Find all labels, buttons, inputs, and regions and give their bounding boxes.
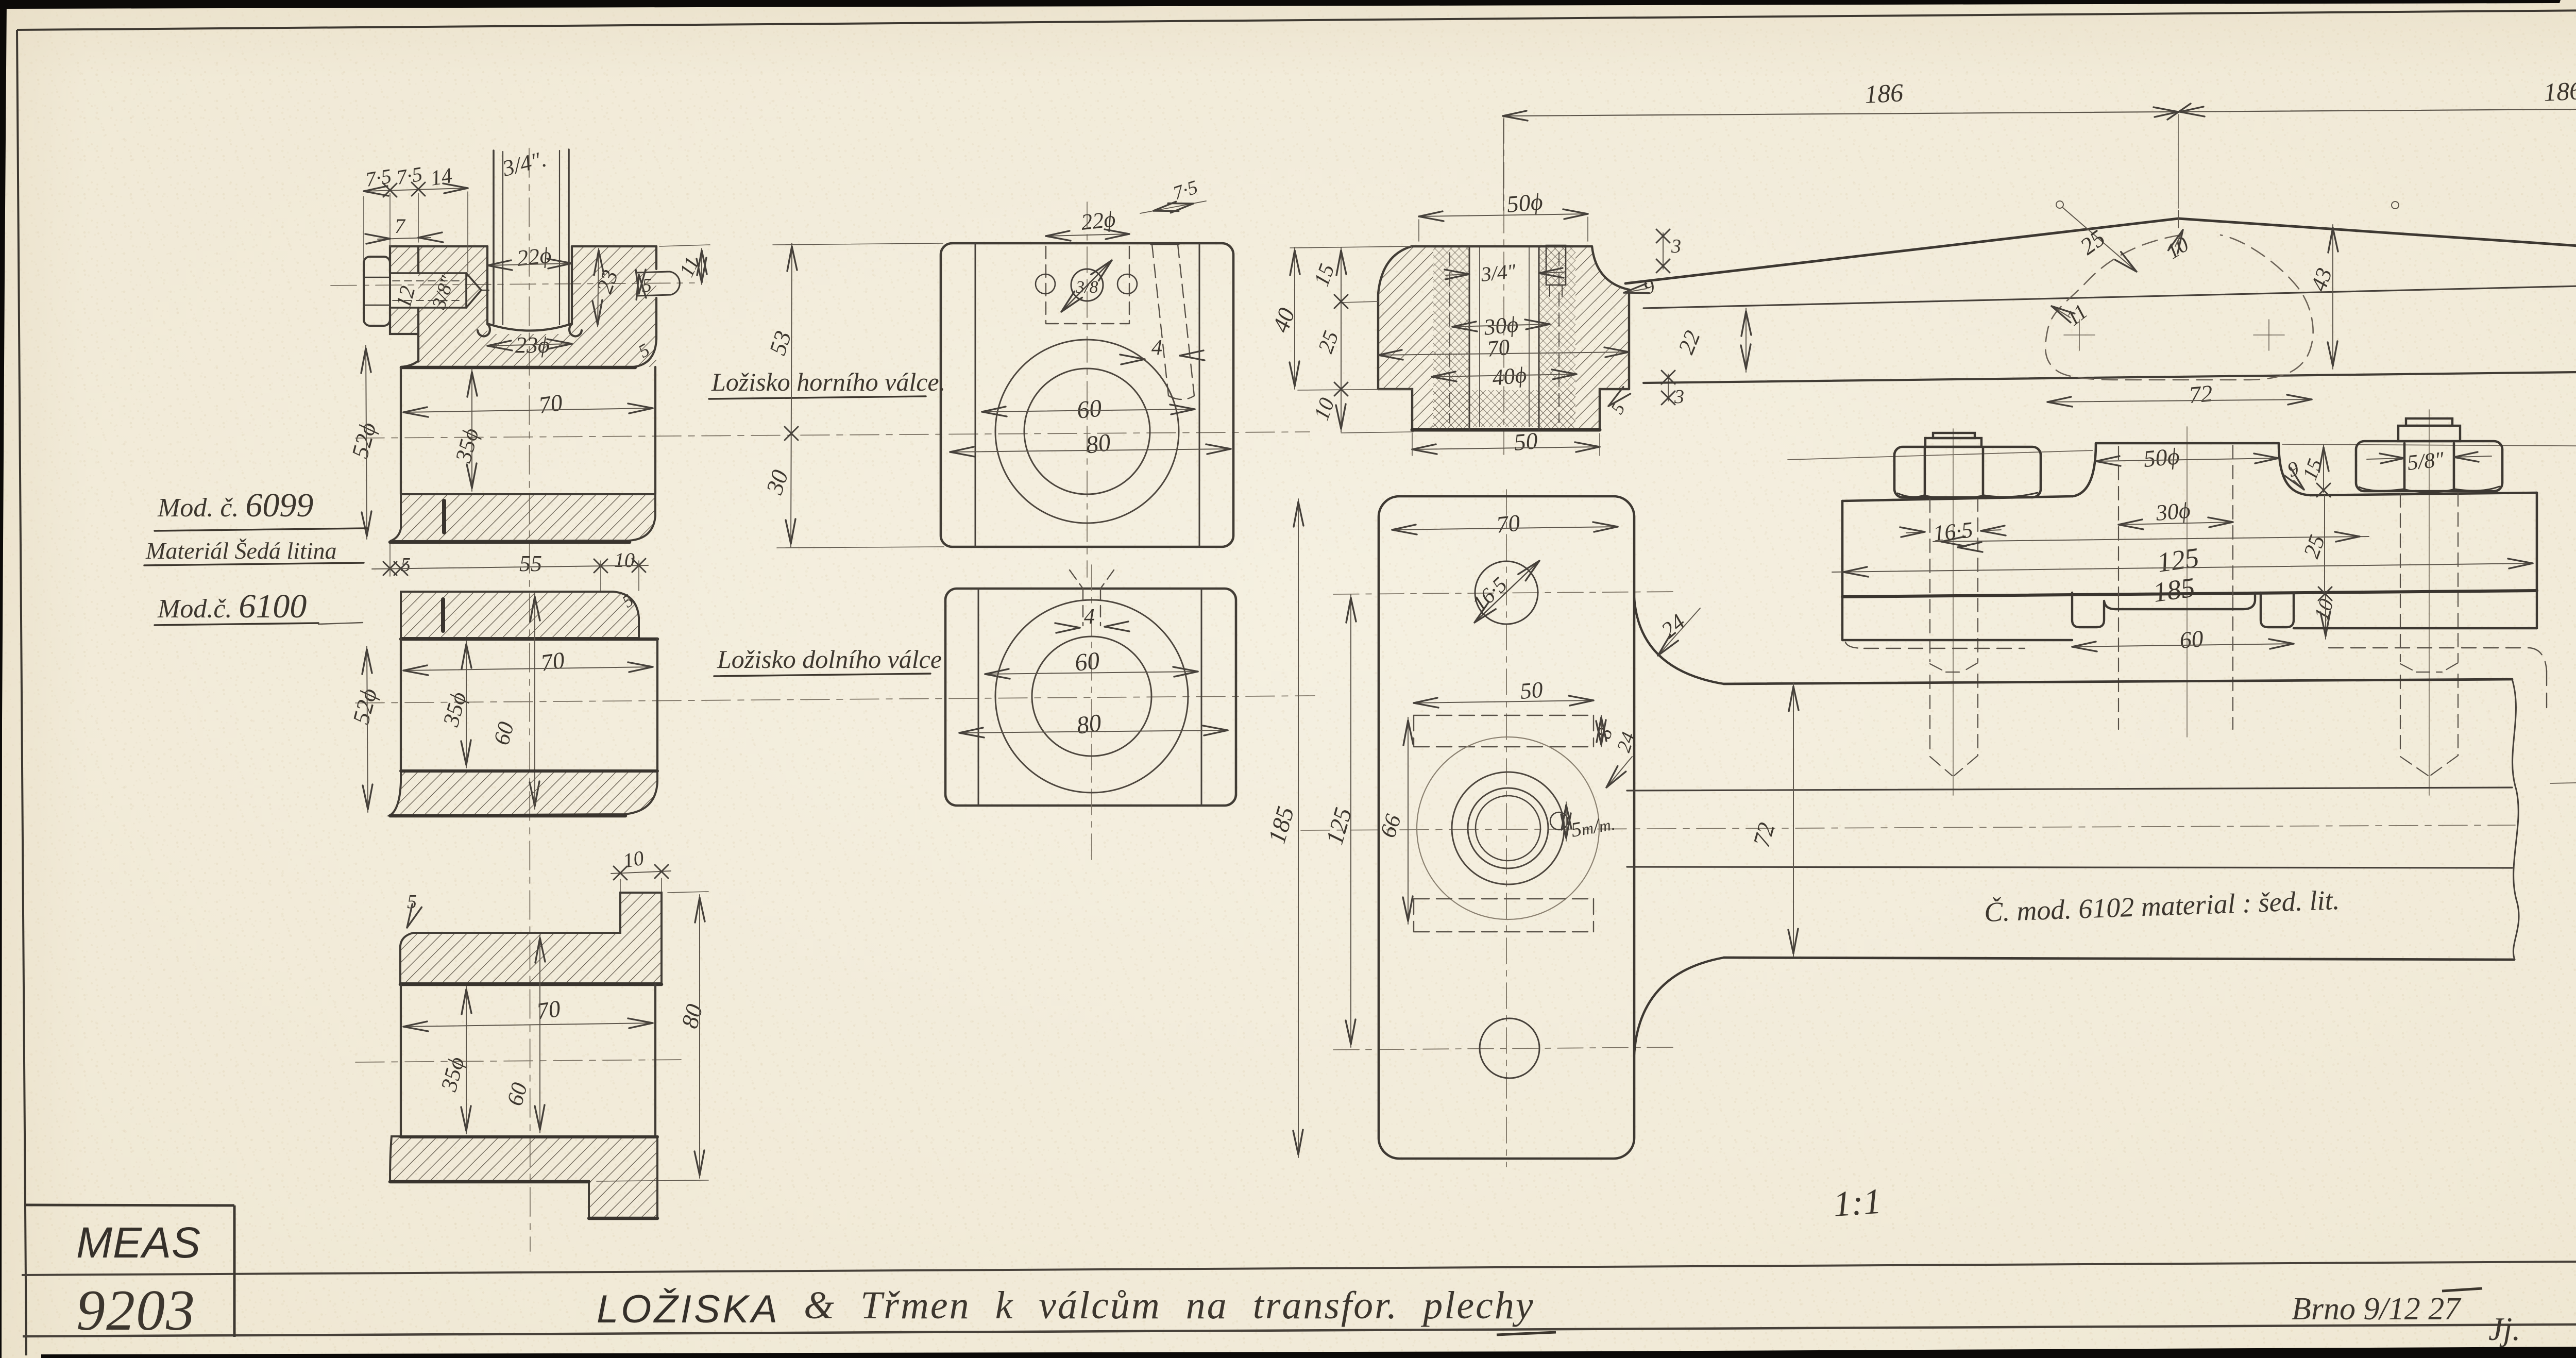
svg-text:30ϕ: 30ϕ	[2155, 497, 2192, 526]
svg-text:186: 186	[1864, 78, 1904, 109]
svg-text:Brno 9/12 27: Brno 9/12 27	[2292, 1292, 2462, 1327]
svg-text:185: 185	[2151, 572, 2197, 608]
svg-text:3: 3	[1671, 236, 1681, 257]
svg-text:5/8″: 5/8″	[2406, 448, 2445, 475]
svg-text:55: 55	[519, 551, 542, 576]
svg-text:22ϕ: 22ϕ	[516, 242, 553, 271]
svg-text:70: 70	[535, 995, 562, 1025]
svg-text:70: 70	[537, 389, 564, 418]
svg-text:60: 60	[1076, 394, 1103, 424]
svg-text:70: 70	[539, 647, 566, 676]
svg-text:16·5: 16·5	[1932, 517, 1974, 546]
svg-text:14: 14	[429, 164, 454, 191]
svg-text:3/4″: 3/4″	[1479, 259, 1517, 286]
svg-text:72: 72	[2188, 380, 2213, 408]
svg-text:186: 186	[2543, 76, 2576, 107]
svg-text:9203: 9203	[76, 1279, 196, 1343]
svg-text:80: 80	[1084, 429, 1112, 459]
svg-text:MEAS: MEAS	[76, 1218, 201, 1267]
svg-text:Materiál Šedá litina: Materiál Šedá litina	[145, 538, 337, 564]
svg-text:LOŽISKA: LOŽISKA	[597, 1287, 780, 1331]
svg-text:7·5: 7·5	[364, 164, 393, 191]
svg-text:50: 50	[1519, 677, 1544, 704]
svg-text:50ϕ: 50ϕ	[1505, 188, 1544, 217]
svg-text:70: 70	[1486, 334, 1511, 362]
svg-text:4: 4	[1151, 336, 1162, 360]
svg-text:1:1: 1:1	[1832, 1182, 1883, 1225]
svg-text:4: 4	[1084, 605, 1095, 629]
svg-text:Jj.: Jj.	[2488, 1311, 2520, 1347]
svg-text:& Třmen k válcům na transfor.: & Třmen k válcům na transfor. plechy	[804, 1284, 1535, 1327]
svg-text:40ϕ: 40ϕ	[1491, 362, 1528, 391]
svg-text:7·5: 7·5	[395, 162, 423, 189]
svg-text:60: 60	[2178, 625, 2204, 653]
svg-text:60: 60	[1074, 647, 1101, 677]
svg-text:Ložisko horního válce.: Ložisko horního válce.	[711, 367, 945, 396]
svg-text:70: 70	[1495, 509, 1521, 538]
svg-text:125: 125	[2155, 542, 2201, 578]
svg-text:7: 7	[395, 214, 406, 238]
svg-text:50: 50	[1513, 427, 1538, 456]
svg-text:50ϕ: 50ϕ	[2142, 443, 2180, 472]
svg-text:Ložisko dolního válce: Ložisko dolního válce	[717, 645, 942, 674]
svg-text:80: 80	[1075, 709, 1103, 740]
svg-text:10: 10	[614, 548, 635, 572]
